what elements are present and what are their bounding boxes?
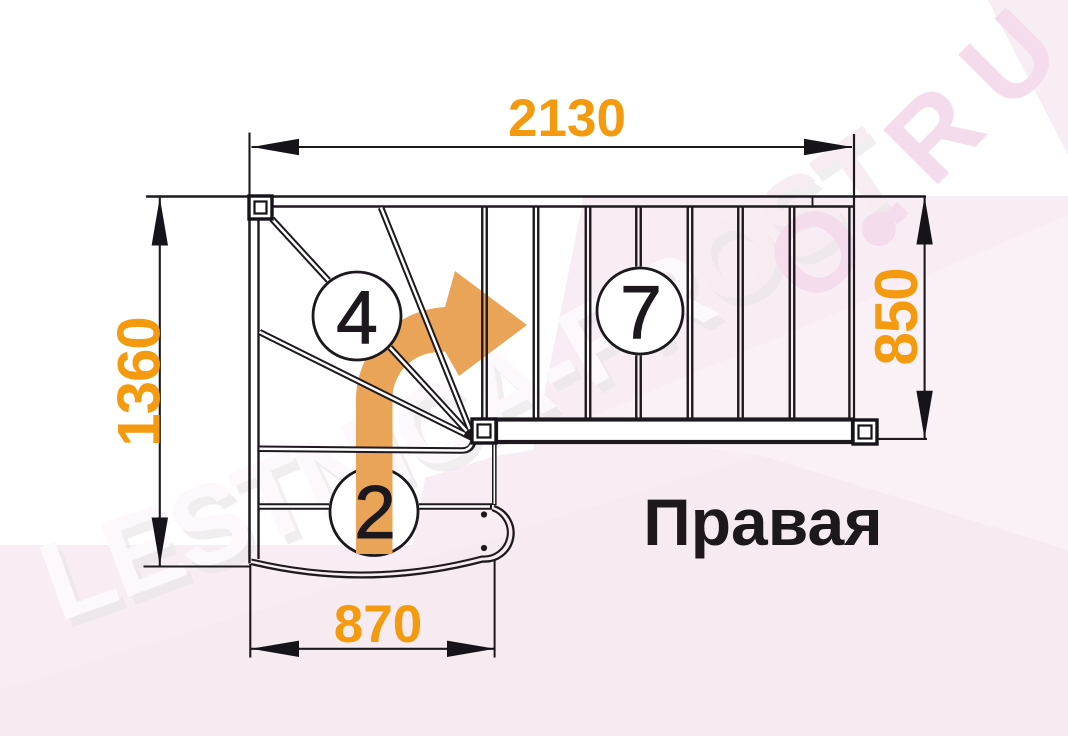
- svg-text:7: 7: [620, 270, 662, 354]
- svg-text:Правая: Правая: [643, 485, 882, 559]
- svg-text:870: 870: [334, 595, 422, 654]
- svg-text:2130: 2130: [508, 89, 626, 148]
- svg-text:850: 850: [863, 268, 930, 365]
- svg-text:1360: 1360: [106, 317, 173, 446]
- svg-text:2: 2: [354, 470, 396, 554]
- svg-text:4: 4: [336, 275, 378, 359]
